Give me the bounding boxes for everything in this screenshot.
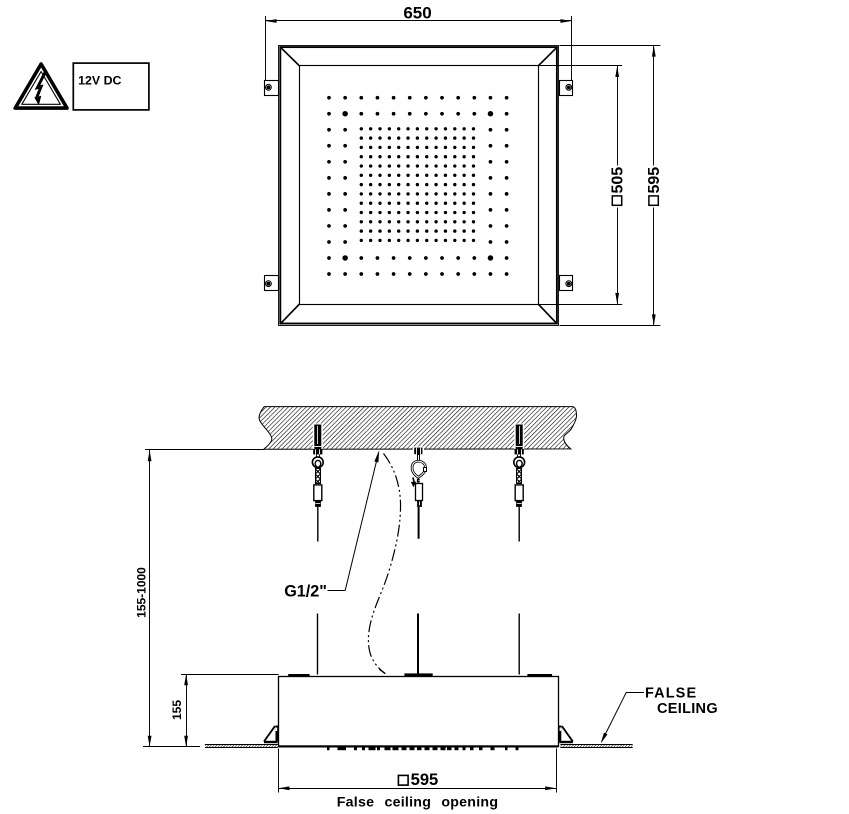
svg-text:505: 505: [609, 167, 626, 194]
svg-text:595: 595: [646, 167, 663, 194]
svg-text:False ceiling opening: False ceiling opening: [337, 794, 499, 810]
svg-text:155-1000: 155-1000: [135, 567, 149, 618]
svg-text:650: 650: [403, 3, 431, 22]
svg-text:FALSE: FALSE: [645, 685, 697, 701]
svg-text:CEILING: CEILING: [657, 701, 718, 717]
svg-text:595: 595: [411, 770, 439, 789]
svg-text:G1/2": G1/2": [284, 582, 327, 600]
svg-text:12V DC: 12V DC: [78, 74, 121, 88]
svg-text:155: 155: [170, 700, 184, 720]
